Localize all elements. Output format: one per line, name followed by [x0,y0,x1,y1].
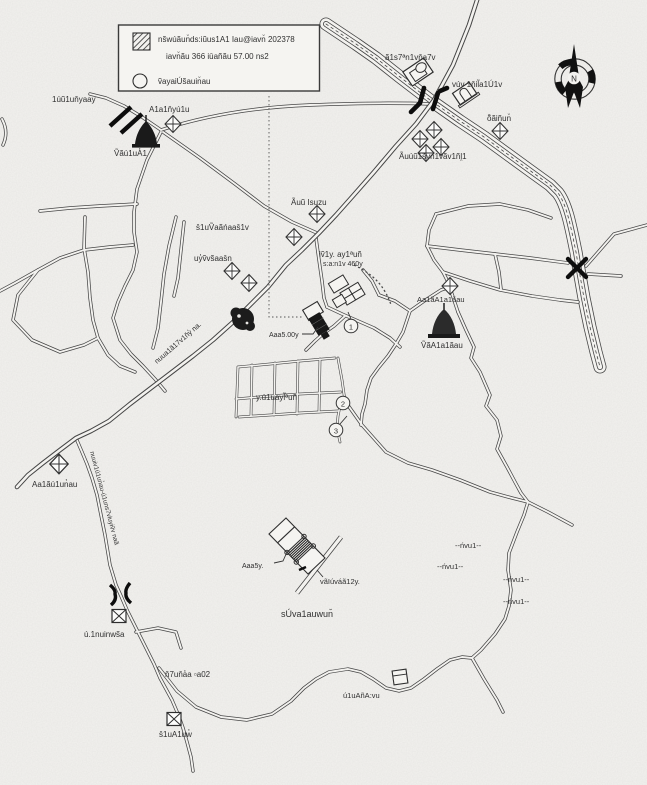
svg-text:Ãuúũ1s̃vn1vãv1ñḽ1: Ãuúũ1s̃vn1vãv1ñḽ1 [399,152,467,161]
svg-text:s̆1uA1uw̓: s̆1uA1uw̓ [159,730,192,739]
svg-text:Aaa5.00y: Aaa5.00y [269,332,299,339]
svg-text:Aa1ãA1a1ãau: Aa1ãA1a1ãau [417,295,465,304]
svg-text:ȭãiñun̆: ȭãiñun̆ [487,114,511,123]
svg-text:ú.1nuinws̃a: ú.1nuinws̃a [84,630,125,639]
svg-text:1: 1 [349,323,353,332]
svg-text:y.ú1uayl̃ªuñ: y.ú1uayl̃ªuñ [256,393,297,402]
svg-text:ã1s7ªn1vňa7v: ã1s7ªn1vňa7v [385,53,436,62]
svg-text:s:a:n1v 460y: s:a:n1v 460y [323,261,363,268]
svg-text:ň7uňa̓a ▫a02: ň7uňa̓a ▫a02 [165,670,211,679]
svg-text:A1a1ňyú1u: A1a1ňyú1u [149,105,189,114]
svg-text:Ṽãú1uA̓1: Ṽãú1uA̓1 [114,149,147,158]
svg-text:ṼãA1a1ãau: ṼãA1a1ãau [421,341,463,350]
svg-text:Ãuũ Isuzu: Ãuũ Isuzu [291,198,327,207]
svg-text:--ńvu1--: --ńvu1-- [503,575,530,584]
svg-text:Aaa5y.: Aaa5y. [242,563,263,570]
svg-text:iavn̆ãu 366 iūañãu 57.00 ns2: iavn̆ãu 366 iūañãu 57.00 ns2 [166,52,269,61]
svg-text:vúv 1ňil̃a1Ú1v: vúv 1ňil̃a1Ú1v [452,80,502,89]
svg-text:iṽ1y. ay1ªuñ: iṽ1y. ay1ªuñ [319,250,362,259]
svg-text:Aa1ãú1un̓au: Aa1ãú1un̓au [32,480,77,489]
svg-text:ú1uAñA:vu: ú1uAñA:vu [343,691,380,700]
svg-text:uy̓ṽvs̃aas̆n: uy̓ṽvs̃aas̆n [194,254,232,263]
svg-text:2: 2 [341,400,345,409]
svg-text:1úũ1uňyaay: 1úũ1uňyaay [52,95,96,104]
svg-text:vãIúváã12y.: vãIúváã12y. [320,577,360,586]
svg-text:N: N [571,75,577,84]
svg-text:s̆1uṼaãńaas̆1v: s̆1uṼaãńaas̆1v [196,223,249,232]
svg-text:--ńvu1--: --ńvu1-- [503,597,530,606]
svg-text:--ńvu1--: --ńvu1-- [455,541,482,550]
svg-text:ṽayaiÚs̃auin̆au: ṽayaiÚs̃auin̆au [158,77,210,86]
svg-text:3: 3 [334,427,338,436]
svg-text:sÚva1auwun̆: sÚva1auwun̆ [281,609,333,619]
svg-text:ns̃wúãun̆ds:iũus1A1 Iau@iavn̆: ns̃wúãun̆ds:iũus1A1 Iau@iavn̆ 202378 [158,35,295,44]
svg-text:--ńvu1--: --ńvu1-- [437,562,464,571]
